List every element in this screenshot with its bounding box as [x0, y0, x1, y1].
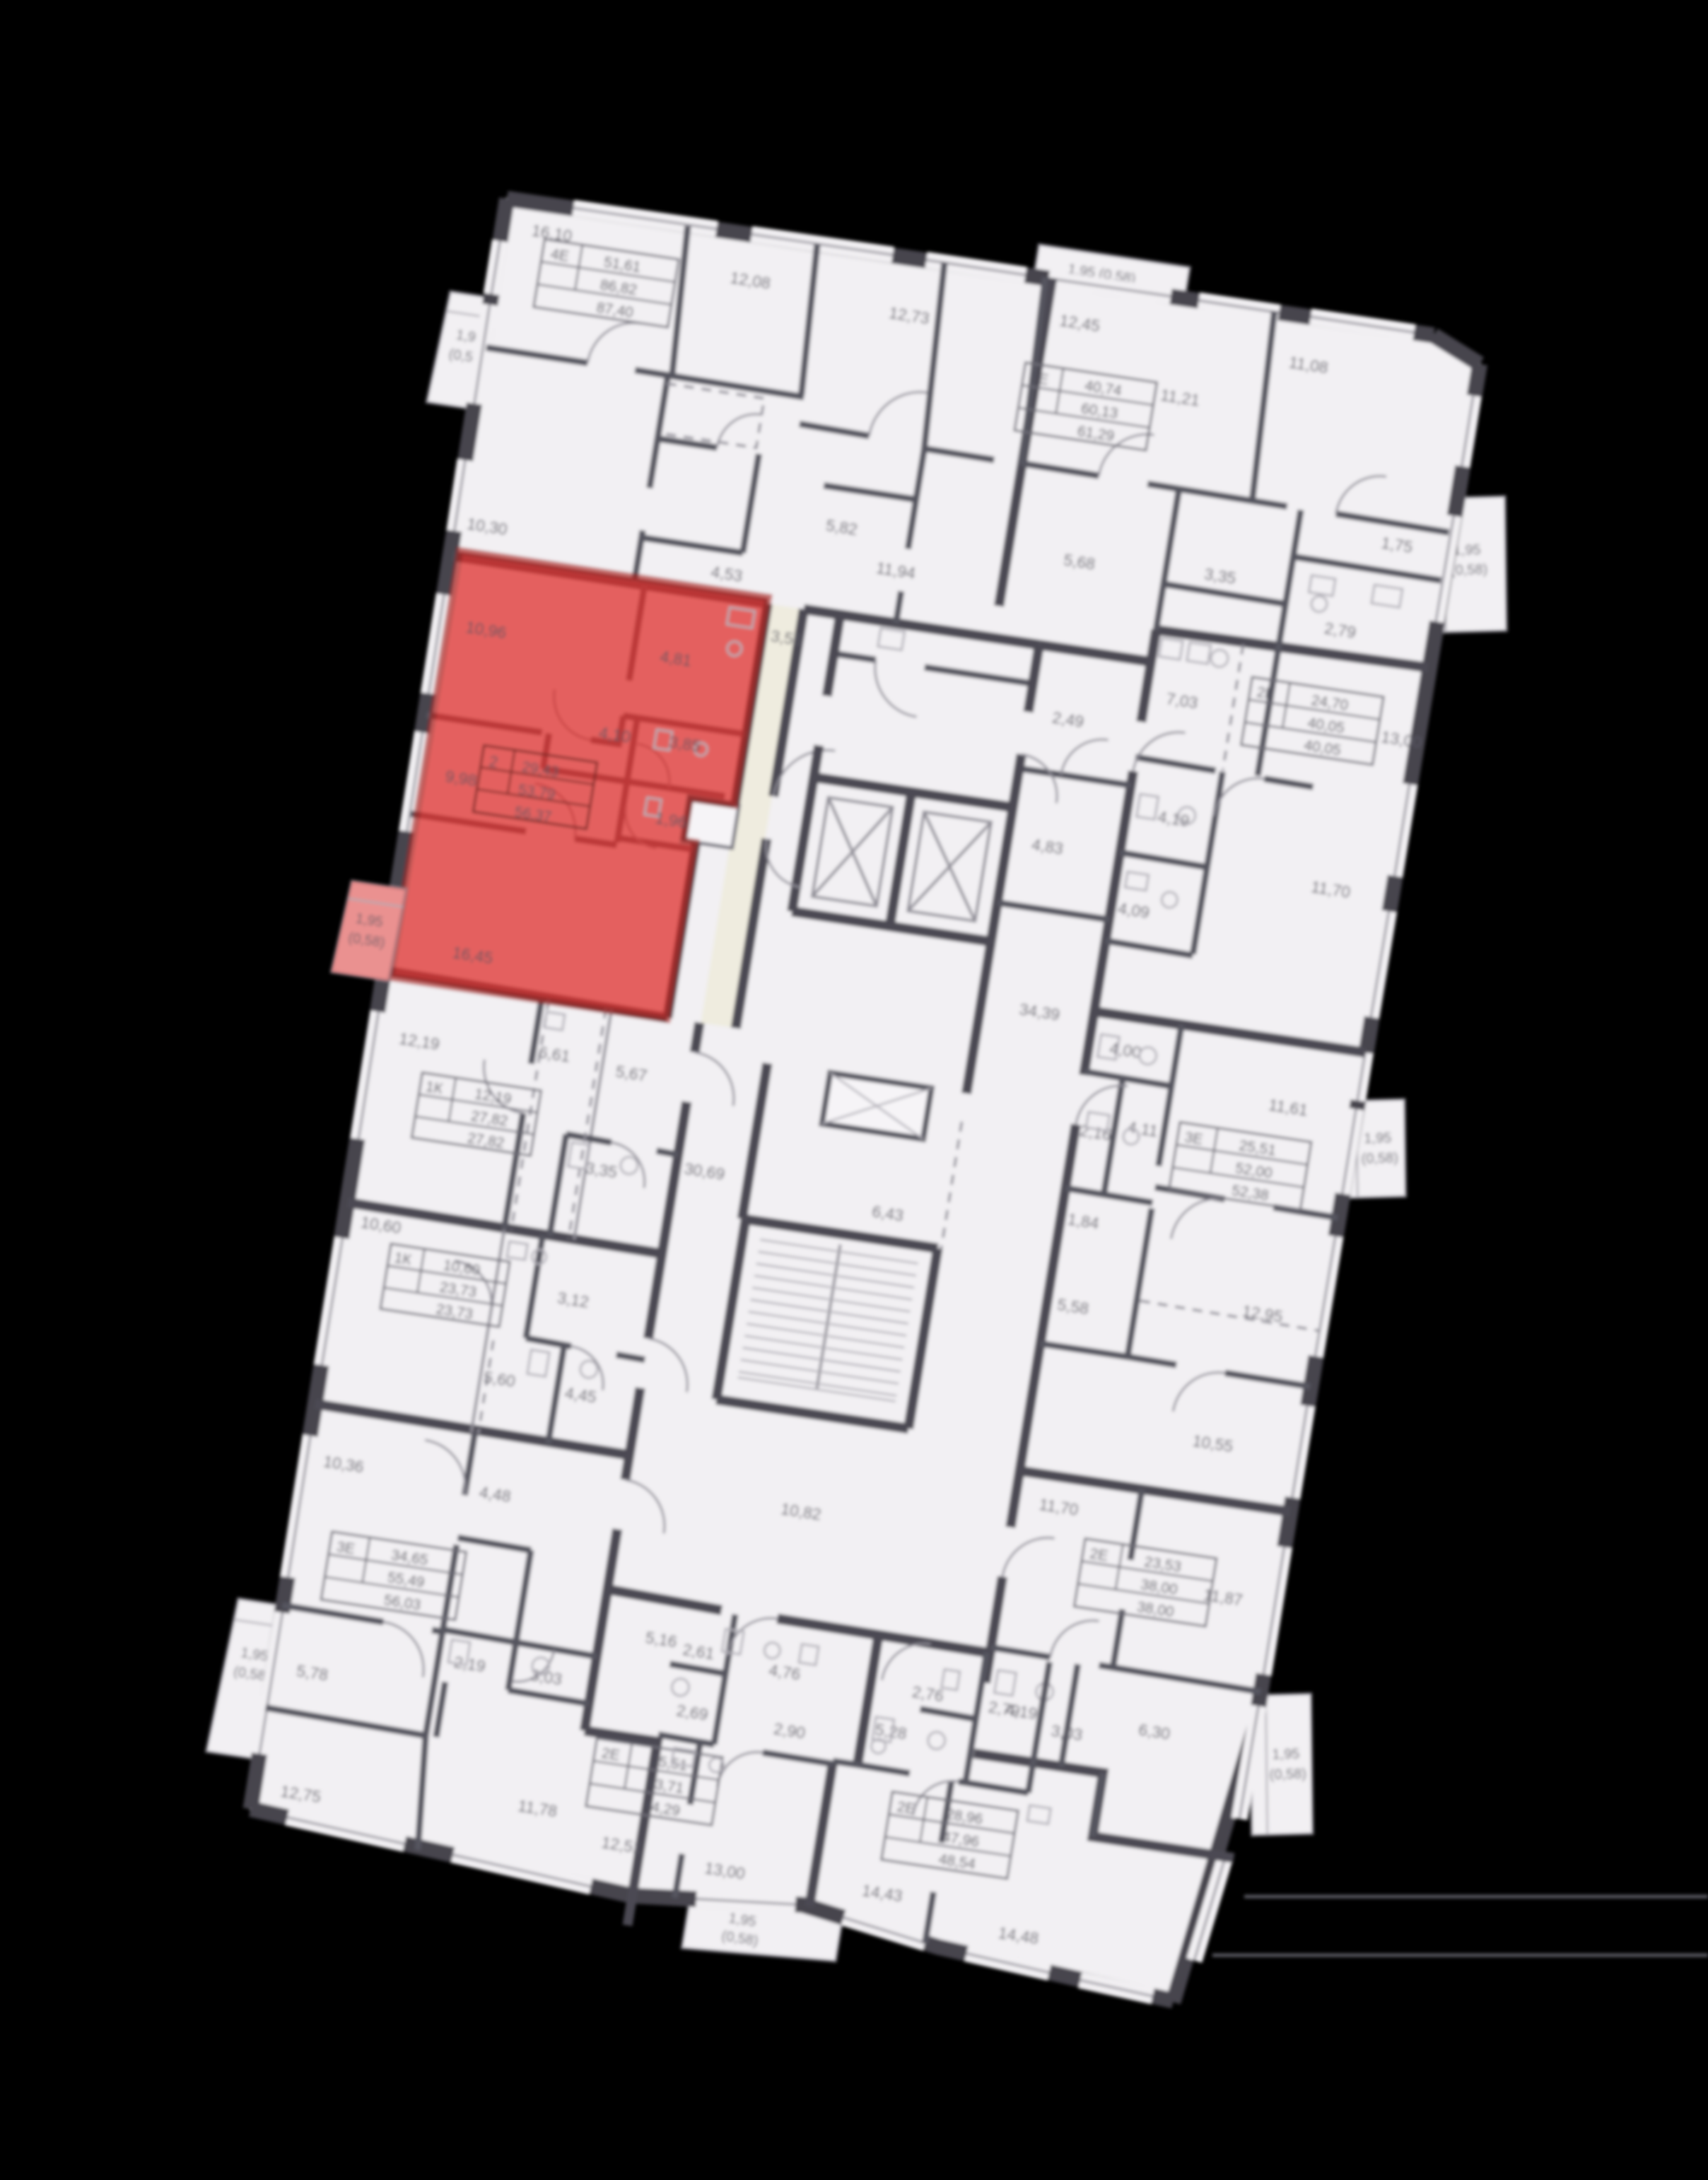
svg-text:1К: 1К: [424, 1079, 444, 1098]
svg-text:(0,58): (0,58): [1362, 1150, 1399, 1166]
svg-text:1,95: 1,95: [1364, 1130, 1391, 1147]
svg-text:3Е: 3Е: [1183, 1129, 1204, 1148]
svg-text:1,95: 1,95: [1272, 1746, 1299, 1762]
svg-text:2Е: 2Е: [1089, 1545, 1109, 1564]
svg-text:(0,58): (0,58): [1451, 562, 1488, 578]
svg-text:2Е: 2Е: [1256, 684, 1276, 703]
svg-text:4Е: 4Е: [549, 246, 570, 265]
svg-text:3Е: 3Е: [336, 1538, 356, 1557]
svg-text:2Е: 2Е: [600, 1745, 621, 1764]
svg-text:(0,58): (0,58): [1270, 1766, 1307, 1782]
svg-text:3Е: 3Е: [1029, 370, 1050, 389]
svg-text:2Е: 2Е: [896, 1798, 916, 1817]
svg-text:1К: 1К: [393, 1250, 413, 1269]
